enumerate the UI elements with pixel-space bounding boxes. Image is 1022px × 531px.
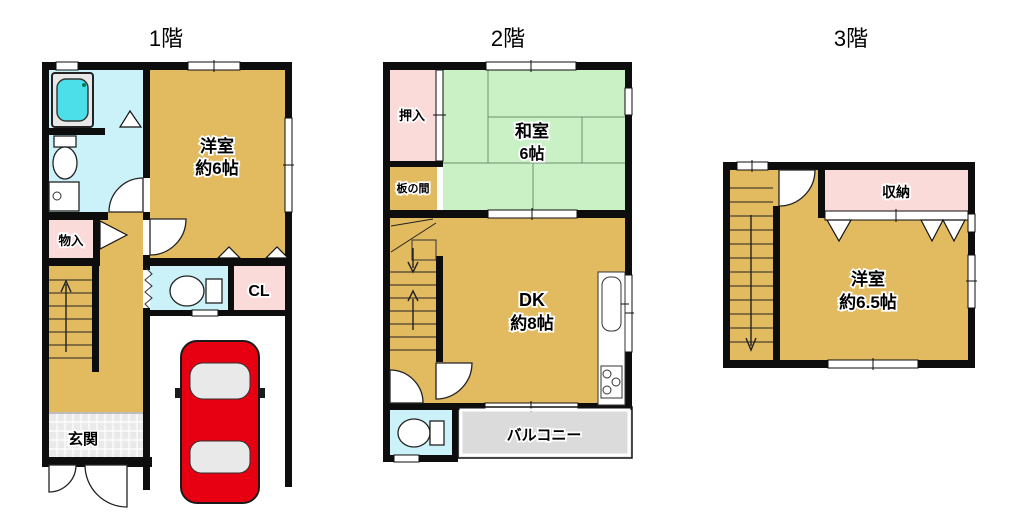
western-room-3f-label: 洋室 [851, 269, 885, 289]
floor1-plan: 1階 [42, 26, 294, 507]
western-room-1f-label: 洋室 [200, 136, 234, 156]
floor2-plan: 2階 [383, 26, 634, 462]
western-room-1f-size: 約6帖 [195, 158, 238, 178]
dk-label: DK [519, 290, 545, 310]
western-room-3f-size: 約6.5帖 [839, 292, 897, 312]
kitchen-counter-icon [598, 272, 629, 405]
car-icon [175, 341, 265, 503]
bathtub-icon [52, 73, 93, 127]
washer-pan-icon [49, 182, 79, 211]
japanese-room-size: 6帖 [520, 144, 545, 163]
dk-size: 約8帖 [510, 313, 553, 333]
entrance-door-icon [49, 465, 127, 507]
itanoma-label: 板の間 [397, 181, 430, 195]
storage-1f-label: 物入 [58, 233, 84, 248]
floor3-title: 3階 [834, 26, 868, 51]
toilet-icon-washroom [53, 136, 77, 179]
floorplan-page: 1階 [0, 0, 1022, 531]
floorplan-drawing: 1階 [0, 0, 1022, 531]
toilet-icon-2f [398, 419, 444, 447]
japanese-room-label: 和室 [515, 121, 549, 141]
floor2-title: 2階 [491, 26, 525, 51]
washitsu-dk-sliding-door-icon [488, 208, 577, 220]
oshiire-label: 押入 [399, 108, 425, 123]
toilet-icon-1f [170, 276, 222, 306]
floor1-title: 1階 [149, 26, 183, 51]
balcony-label: バルコニー [507, 427, 582, 444]
cl-label: CL [248, 283, 270, 300]
storage-3f-label: 収納 [882, 184, 910, 200]
floor3-plan: 3階 [723, 26, 977, 370]
entrance-label: 玄関 [68, 430, 98, 448]
